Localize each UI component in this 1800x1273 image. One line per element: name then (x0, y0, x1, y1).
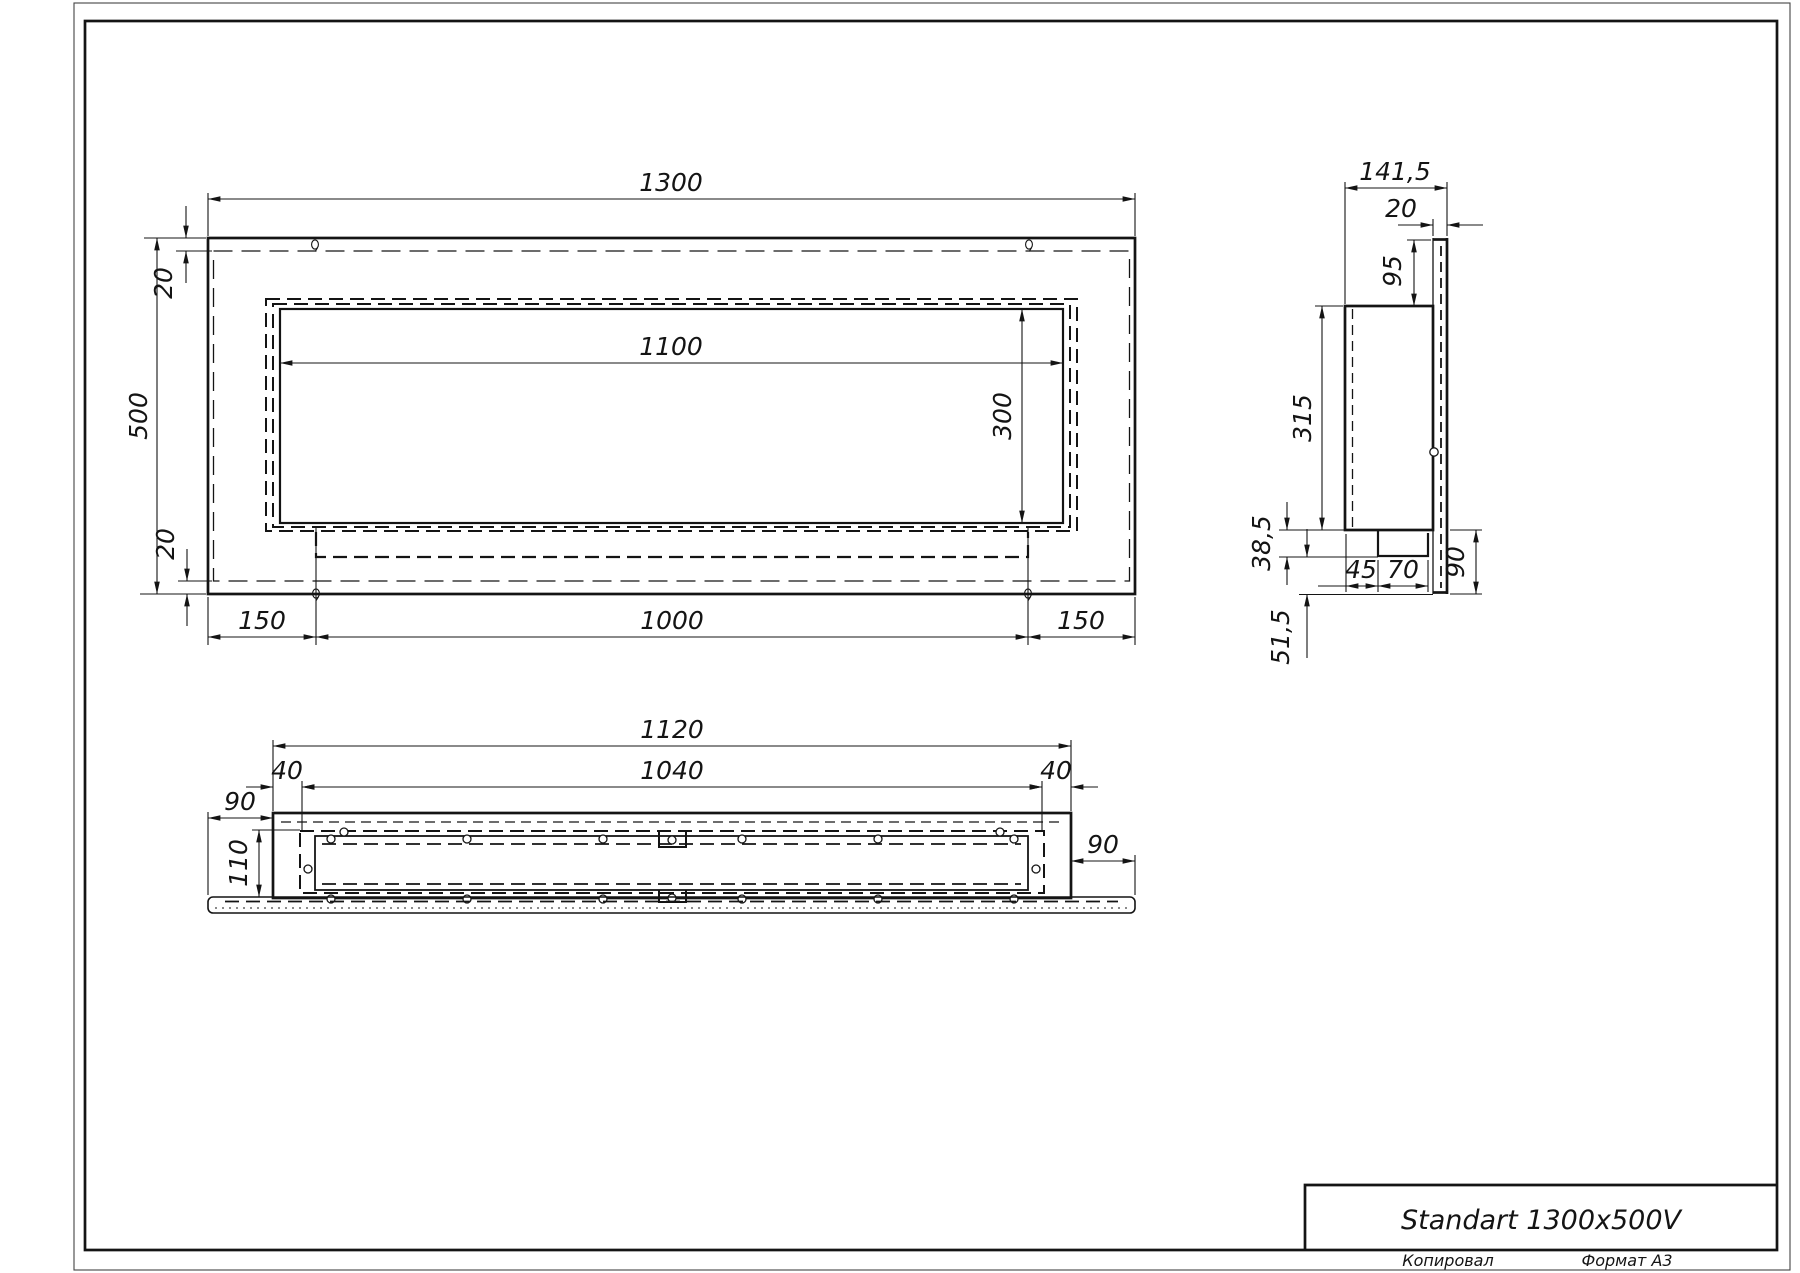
dim-bottom-right-overhang-label: 90 (1087, 830, 1119, 859)
screw-hole (668, 836, 676, 844)
dim-front-left-margin-label: 150 (238, 606, 286, 635)
drawing-title: Standart 1300x500V (1401, 1205, 1684, 1236)
front-tray-hidden (316, 532, 1028, 557)
dim-side-panel-overhang: 95 (1378, 240, 1414, 306)
dim-bottom-left-overhang-label: 90 (224, 787, 256, 816)
dim-bottom-left-overhang: 90 (208, 787, 273, 818)
screw-hole (327, 835, 335, 843)
screw-hole (304, 865, 312, 873)
screw-hole (599, 835, 607, 843)
dim-front-opening-height: 300 (988, 309, 1022, 523)
dim-front-opening-height-label: 300 (988, 392, 1017, 440)
dim-front-opening-width-label: 1100 (639, 332, 703, 361)
screw-hole (463, 835, 471, 843)
dim-bottom-left-inset: 40 (246, 756, 329, 787)
dim-bottom-right-inset: 40 (1015, 756, 1098, 787)
screw-hole (340, 828, 348, 836)
dim-bottom-depth: 110 (224, 830, 259, 897)
dim-side-body-height-label: 315 (1288, 394, 1317, 442)
screw-hole (1032, 865, 1040, 873)
dim-side-panel-thickness-label: 20 (1385, 194, 1417, 223)
side-view: 141,5 20 95 315 38,5 51,5 45 (1247, 157, 1483, 665)
bottom-housing-outline (273, 813, 1071, 898)
title-block: Standart 1300x500V Копировал Формат А3 (1305, 1185, 1777, 1270)
dim-side-tray-width-label: 70 (1387, 555, 1419, 584)
copied-by-label: Копировал (1402, 1251, 1493, 1270)
dim-front-bottom-inset-label: 20 (151, 528, 180, 560)
dim-side-tray-depth: 38,5 (1247, 502, 1287, 585)
side-body-outline (1345, 306, 1433, 530)
dim-side-tray-width: 70 (1378, 555, 1428, 586)
screw-hole (996, 828, 1004, 836)
screw-hole (738, 835, 746, 843)
dim-front-bottom-row: 150 1000 150 (208, 606, 1135, 637)
drawing-sheet: 1300 500 20 20 1100 300 150 (0, 0, 1800, 1273)
side-tray (1378, 530, 1428, 556)
dim-side-depth-label: 141,5 (1359, 157, 1431, 186)
dim-bottom-depth-label: 110 (224, 839, 253, 887)
dim-side-tray-offset-label: 45 (1345, 555, 1377, 584)
format-label: Формат А3 (1581, 1251, 1672, 1270)
screw-hole (874, 835, 882, 843)
front-view: 1300 500 20 20 1100 300 150 (124, 168, 1135, 645)
technical-drawing: 1300 500 20 20 1100 300 150 (0, 0, 1800, 1273)
dim-bottom-opening-width-label: 1040 (640, 756, 704, 785)
mount-hole (1430, 448, 1438, 456)
dim-front-right-margin-label: 150 (1057, 606, 1105, 635)
dim-side-panel-thickness: 20 (1385, 194, 1483, 225)
dim-front-opening-width: 1100 (280, 332, 1063, 363)
weld-mark (312, 240, 319, 252)
dim-bottom-right-inset-label: 40 (1040, 756, 1072, 785)
frame-border (85, 21, 1777, 1250)
dim-bottom-right-overhang: 90 (1071, 830, 1135, 861)
weld-mark (1026, 240, 1033, 252)
dim-bottom-width: 1120 (273, 715, 1071, 746)
dim-front-width: 1300 (208, 168, 1135, 199)
dim-side-tray-offset: 45 (1318, 555, 1378, 586)
dim-front-height-label: 500 (124, 392, 153, 440)
dim-side-panel-overhang-label: 95 (1378, 255, 1407, 287)
dim-front-width-label: 1300 (639, 168, 703, 197)
dim-front-top-inset: 20 (149, 206, 186, 299)
dim-side-depth: 141,5 (1345, 157, 1447, 188)
dim-front-mount-span-label: 1000 (640, 606, 704, 635)
dim-bottom-width-label: 1120 (640, 715, 704, 744)
dim-side-body-height: 315 (1288, 306, 1322, 530)
dim-bottom-opening-width: 1040 (302, 756, 1042, 787)
screw-hole (1010, 835, 1018, 843)
dim-side-lower-overhang-label: 51,5 (1266, 609, 1295, 665)
dim-bottom-left-inset-label: 40 (271, 756, 303, 785)
dim-side-lower-height-label: 90 (1441, 546, 1470, 578)
dim-front-bottom-inset: 20 (151, 528, 187, 626)
dim-front-top-inset-label: 20 (149, 267, 178, 299)
bottom-view: 1120 1040 40 40 90 90 110 (208, 715, 1135, 913)
dim-side-tray-depth-label: 38,5 (1247, 515, 1276, 571)
